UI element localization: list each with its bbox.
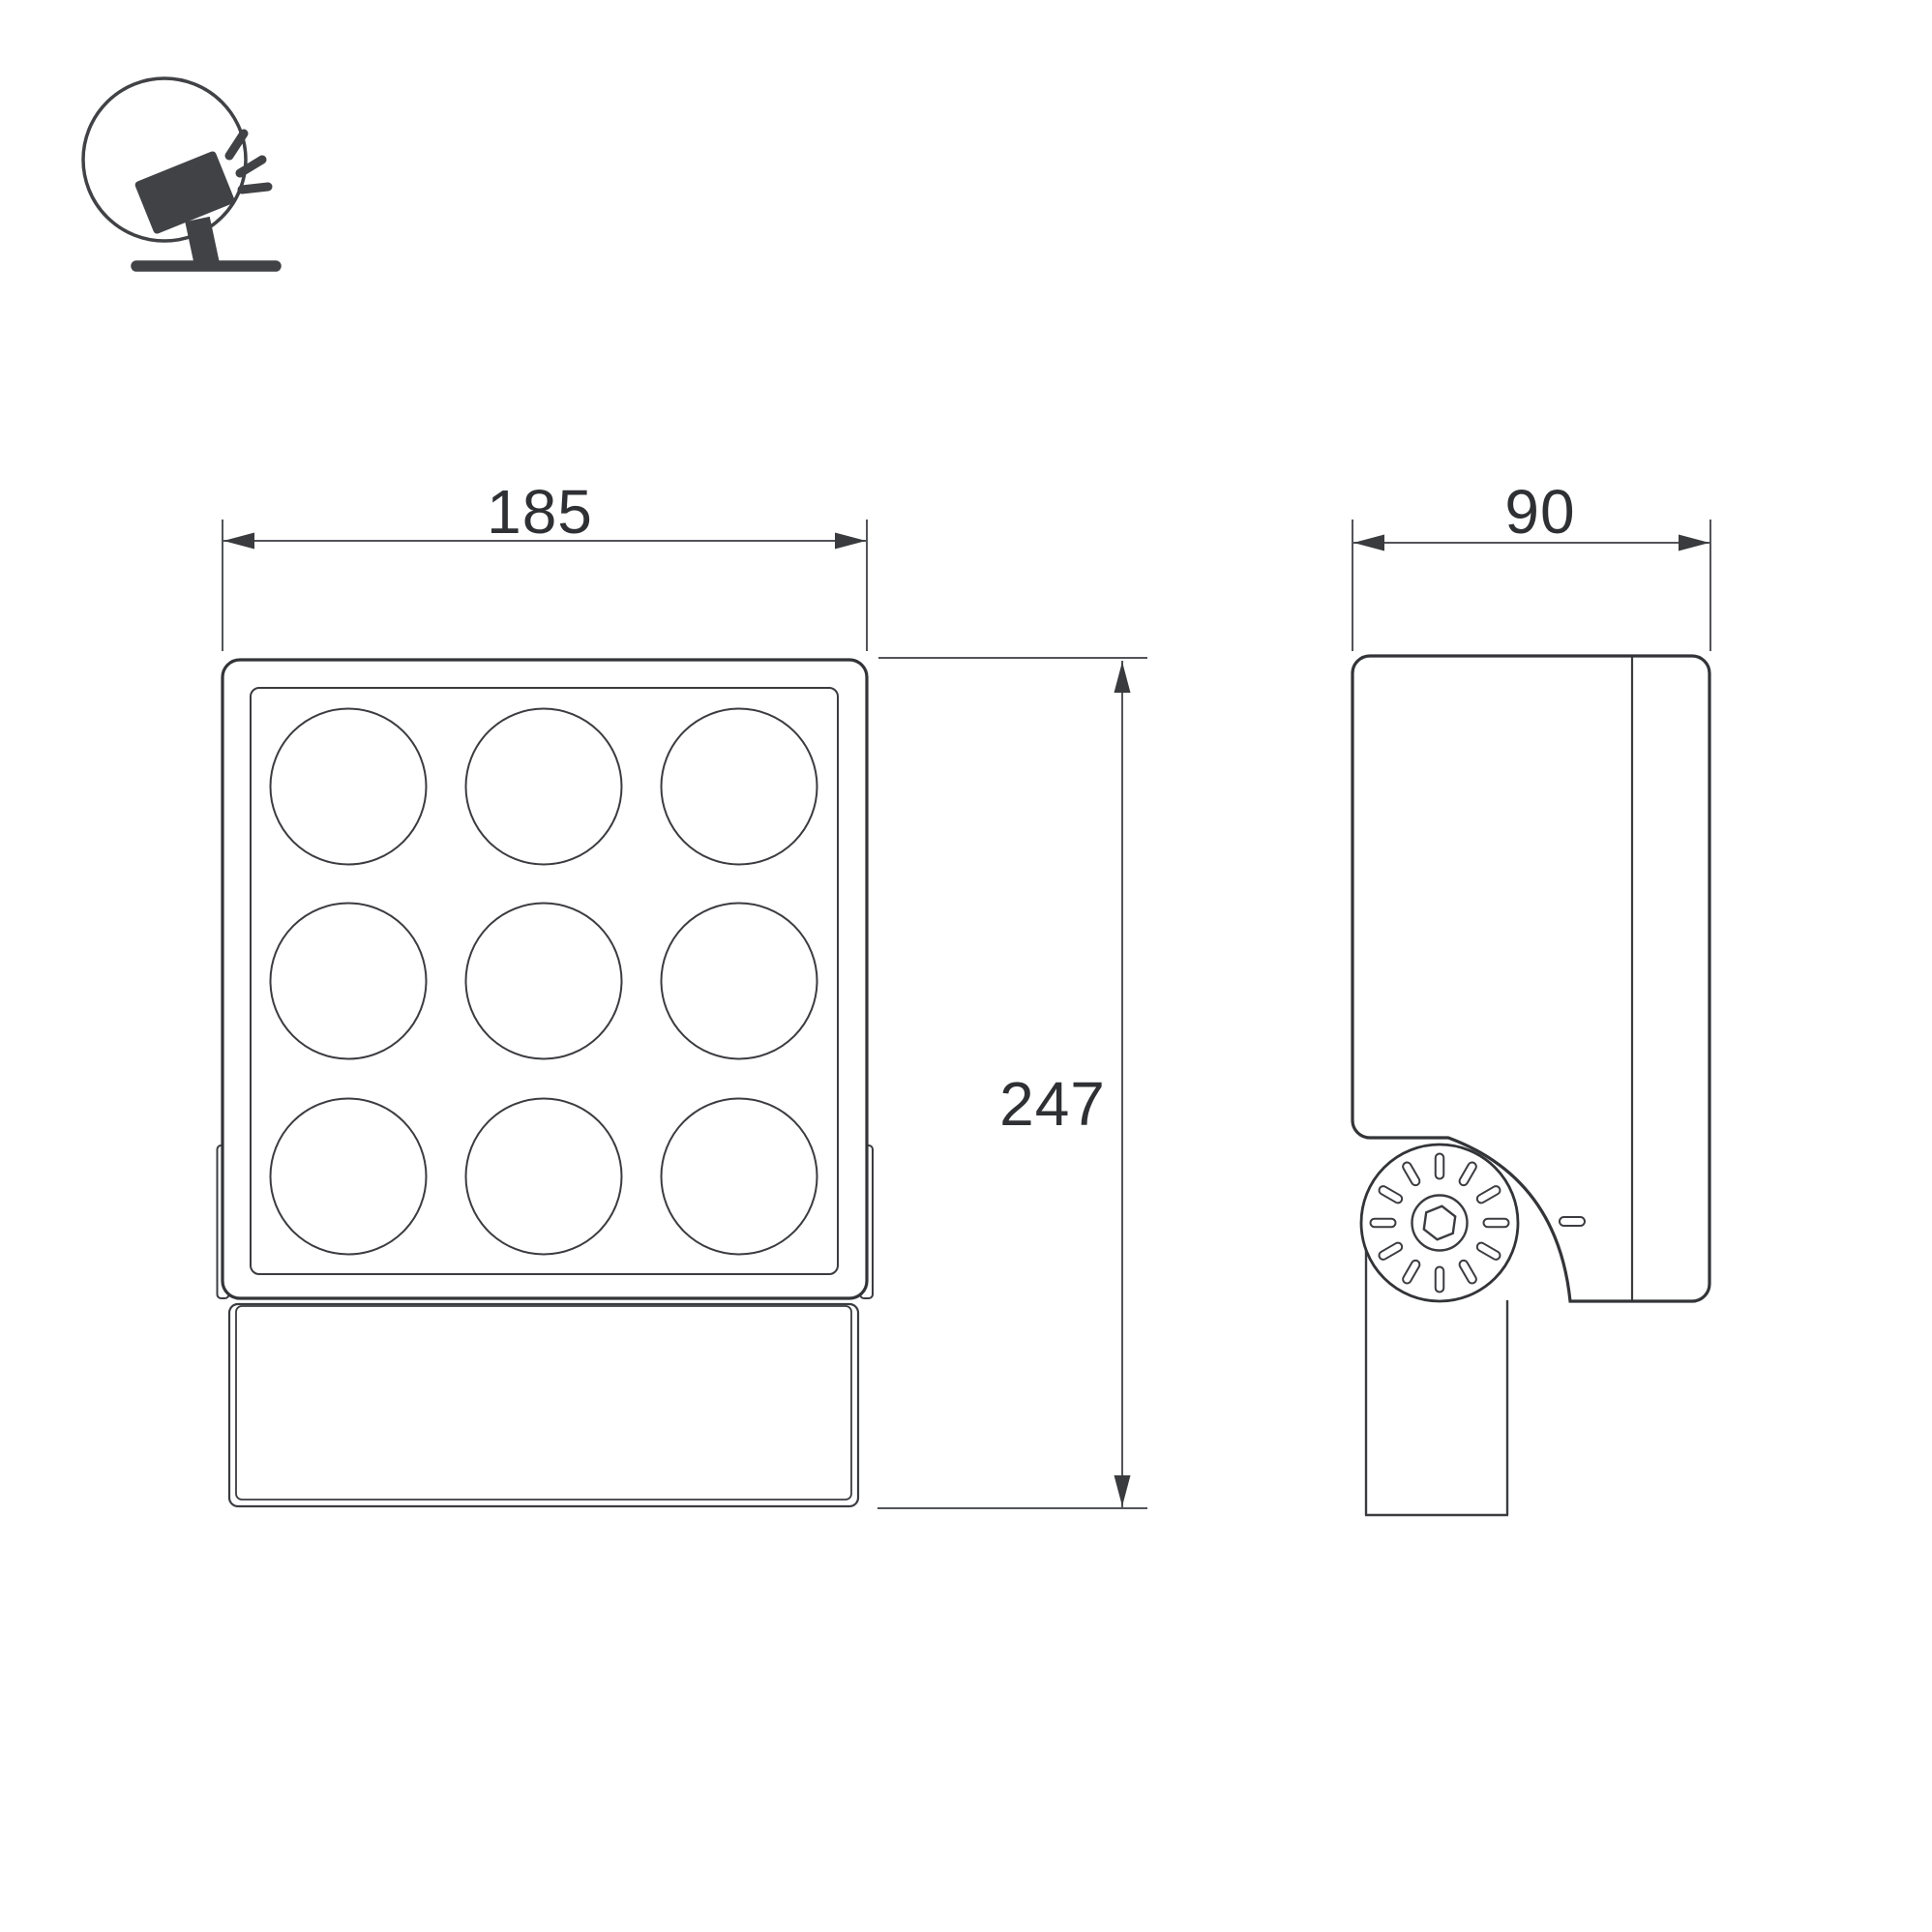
dimension-label-front-height: 247 — [999, 1069, 1106, 1139]
technical-drawing: 185 247 90 — [0, 0, 1932, 1932]
front-view — [218, 660, 874, 1506]
drawing-canvas: 185 247 90 — [0, 0, 1932, 1932]
icon-light-ray-bottom — [242, 187, 268, 190]
dimension-side-depth: 90 — [1352, 477, 1710, 651]
arrow-left-icon — [1353, 535, 1384, 551]
side-view — [1352, 656, 1709, 1516]
knob-outer-circle — [1361, 1144, 1518, 1301]
arrow-right-icon — [835, 533, 866, 550]
arrow-right-icon — [1679, 535, 1709, 551]
driver-box-outline — [229, 1304, 858, 1506]
dimension-label-side-depth: 90 — [1504, 477, 1575, 547]
dimension-front-height: 247 — [877, 658, 1147, 1508]
dimension-label-front-width: 185 — [487, 477, 593, 547]
locking-knob — [1361, 1144, 1518, 1301]
lamp-head-outline — [223, 660, 867, 1298]
arrow-left-icon — [223, 533, 254, 550]
arrow-up-icon — [1115, 662, 1131, 693]
floodlight-icon — [83, 78, 276, 267]
dimension-front-width: 185 — [223, 477, 867, 651]
arrow-down-icon — [1115, 1475, 1131, 1506]
